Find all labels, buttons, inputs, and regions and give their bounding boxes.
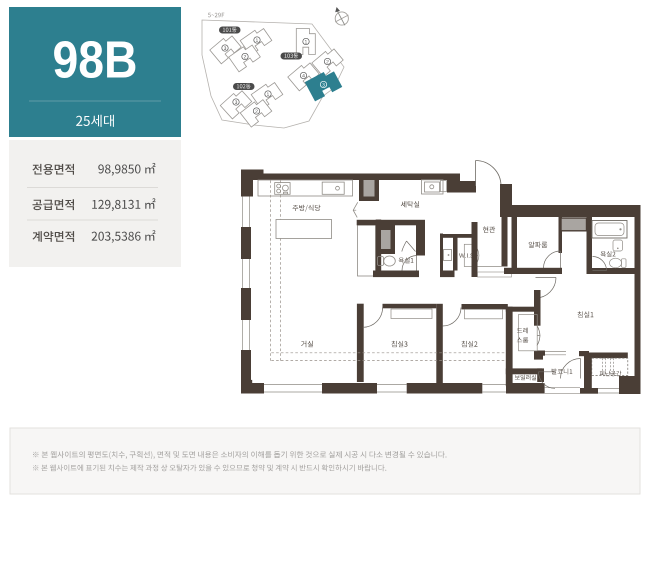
- svg-text:98B: 98B: [53, 32, 138, 90]
